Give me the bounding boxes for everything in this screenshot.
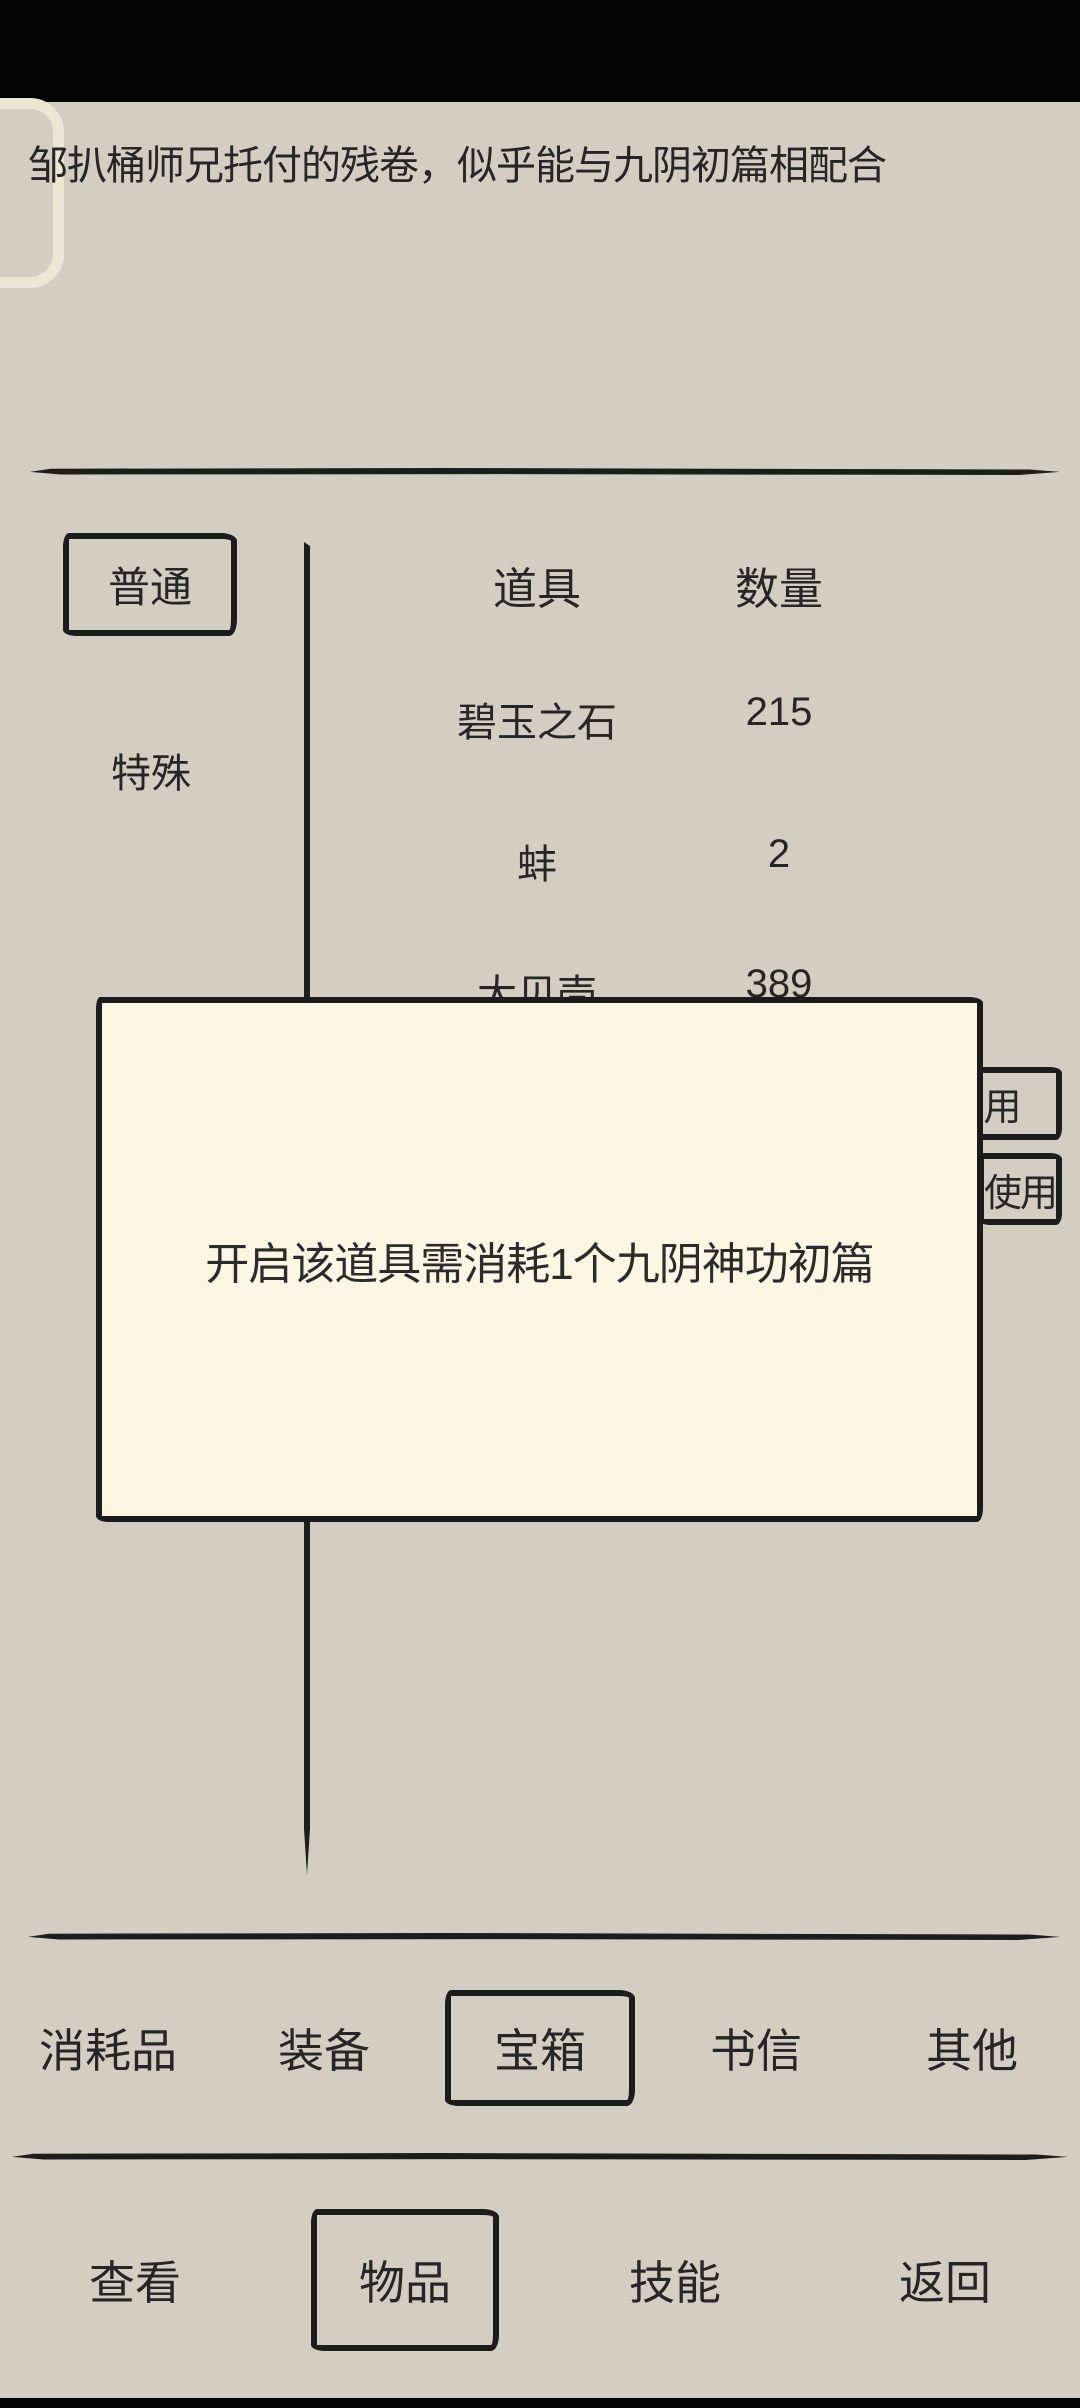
tab-qita[interactable]: 其他 — [864, 1988, 1080, 2108]
cost-warning-modal[interactable]: 开启该道具需消耗1个九阴神功初篇 — [96, 997, 983, 1522]
use-button-2-label: 使用 — [984, 1162, 1056, 1217]
nav-jineng-label: 技能 — [629, 2247, 721, 2313]
table-row-qty-biyuzhishi: 215 — [669, 690, 889, 735]
nav-chakan-label: 查看 — [89, 2247, 181, 2313]
screen-corner-artifact — [0, 98, 64, 288]
divider-above-nav — [12, 2153, 1068, 2160]
nav-wupin-label: 物品 — [359, 2247, 451, 2313]
bottom-nav: 查看 物品 技能 返回 — [0, 2208, 1080, 2352]
tab-shuxin[interactable]: 书信 — [648, 1988, 864, 2108]
use-button-2[interactable]: 使用 — [978, 1153, 1062, 1225]
table-header-qty: 数量 — [669, 553, 889, 617]
tab-xiaohaopin[interactable]: 消耗品 — [0, 1988, 216, 2108]
category-teshu[interactable]: 特殊 — [0, 741, 302, 799]
status-bar-top — [0, 0, 1080, 102]
nav-wupin-selected[interactable]: 物品 — [270, 2208, 540, 2352]
nav-fanhui[interactable]: 返回 — [810, 2208, 1080, 2352]
tab-baoxiang-label: 宝箱 — [494, 2015, 586, 2081]
tab-baoxiang-selected[interactable]: 宝箱 — [432, 1988, 648, 2108]
table-header-item: 道具 — [427, 553, 647, 617]
divider-above-tabs — [28, 1933, 1060, 1940]
table-row-item-biyuzhishi[interactable]: 碧玉之石 — [427, 690, 647, 748]
tab-baoxiang-box: 宝箱 — [445, 1990, 635, 2106]
caption-text: 邹扒桶师兄托付的残卷，似乎能与九阴初篇相配合 — [28, 142, 1048, 190]
tab-shuxin-label: 书信 — [710, 2015, 802, 2081]
cost-warning-message: 开启该道具需消耗1个九阴神功初篇 — [205, 1228, 873, 1292]
tab-xiaohaopin-label: 消耗品 — [39, 2015, 177, 2081]
game-screen: 邹扒桶师兄托付的残卷，似乎能与九阴初篇相配合 普通 特殊 道具 数量 碧玉之石 … — [0, 0, 1080, 2408]
table-row-qty-bang: 2 — [669, 832, 889, 877]
category-teshu-label: 特殊 — [111, 752, 191, 796]
status-bar-bottom — [0, 2398, 1080, 2408]
nav-jineng[interactable]: 技能 — [540, 2208, 810, 2352]
category-putong-label: 普通 — [108, 554, 192, 615]
category-putong-selected[interactable]: 普通 — [63, 533, 237, 636]
tab-zhuangbei-label: 装备 — [278, 2015, 370, 2081]
nav-chakan[interactable]: 查看 — [0, 2208, 270, 2352]
tab-qita-label: 其他 — [926, 2015, 1018, 2081]
item-category-tabs: 消耗品 装备 宝箱 书信 其他 — [0, 1988, 1080, 2108]
table-row-item-bang[interactable]: 蚌 — [427, 832, 647, 890]
nav-wupin-box: 物品 — [311, 2209, 499, 2351]
tab-zhuangbei[interactable]: 装备 — [216, 1988, 432, 2108]
nav-fanhui-label: 返回 — [899, 2247, 991, 2313]
divider-top — [30, 468, 1060, 475]
